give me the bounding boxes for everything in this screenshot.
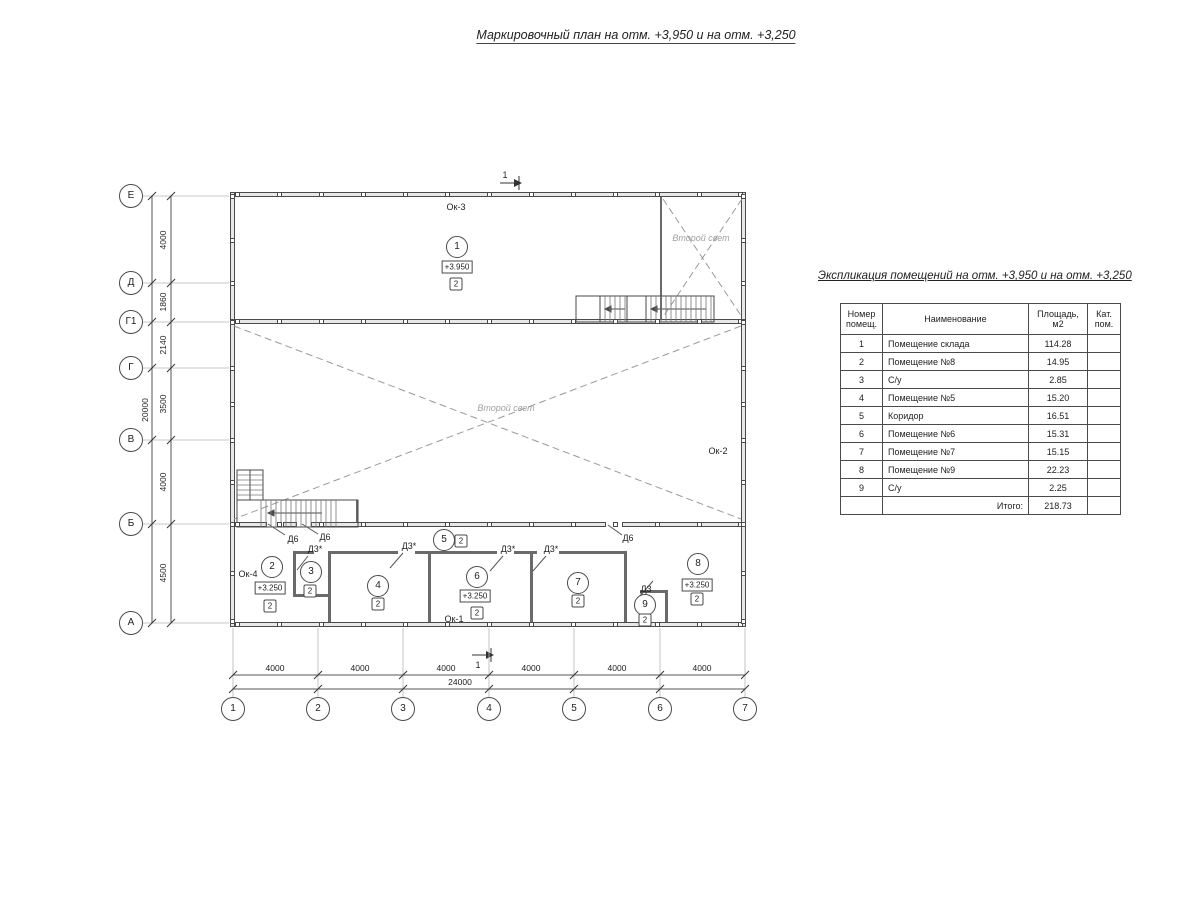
door-label: Д6 bbox=[319, 532, 330, 542]
dimension-value: 4000 bbox=[437, 663, 456, 673]
category-mark: 2 bbox=[691, 593, 704, 606]
dimension-value: 4000 bbox=[351, 663, 370, 673]
schedule-cell: Помещение склада bbox=[882, 335, 1028, 353]
column-marker bbox=[319, 522, 324, 527]
schedule-cell: 15.20 bbox=[1028, 389, 1087, 407]
schedule-cell: 2 bbox=[841, 353, 883, 371]
column-marker bbox=[655, 319, 660, 324]
drawing-sheet: Маркировочный план на отм. +3,950 и на о… bbox=[0, 0, 1200, 900]
schedule-cell: 3 bbox=[841, 371, 883, 389]
schedule-cell: 16.51 bbox=[1028, 407, 1087, 425]
schedule-title: Экспликация помещений на отм. +3,950 и н… bbox=[818, 270, 1132, 282]
column-marker bbox=[445, 622, 450, 627]
column-marker bbox=[613, 192, 618, 197]
column-marker bbox=[235, 192, 240, 197]
axis-bubble-Е: Е bbox=[119, 184, 143, 208]
column-marker bbox=[403, 622, 408, 627]
window-label: Ок-2 bbox=[709, 446, 728, 456]
schedule-cell: 14.95 bbox=[1028, 353, 1087, 371]
column-marker bbox=[741, 402, 746, 407]
column-marker bbox=[613, 522, 618, 527]
column-marker bbox=[361, 622, 366, 627]
category-mark: 2 bbox=[304, 585, 317, 598]
schedule-cell bbox=[1087, 353, 1120, 371]
room-number-2: 2 bbox=[261, 556, 283, 578]
dimension-value: 4000 bbox=[522, 663, 541, 673]
column-marker bbox=[230, 194, 235, 199]
dimension-value: 4000 bbox=[158, 473, 168, 492]
column-marker bbox=[487, 622, 492, 627]
category-mark: 2 bbox=[264, 600, 277, 613]
schedule-cell: 9 bbox=[841, 479, 883, 497]
column-marker bbox=[235, 522, 240, 527]
schedule-cell: С/у bbox=[882, 479, 1028, 497]
column-marker bbox=[230, 366, 235, 371]
column-marker bbox=[319, 192, 324, 197]
door-label: Д3* bbox=[308, 544, 323, 554]
column-marker bbox=[230, 238, 235, 243]
room-number-6: 6 bbox=[466, 566, 488, 588]
schedule-cell: 7 bbox=[841, 443, 883, 461]
dimension-value: 3500 bbox=[158, 395, 168, 414]
column-marker bbox=[741, 571, 746, 576]
schedule-row: 3С/у2.85 bbox=[841, 371, 1121, 389]
column-marker bbox=[319, 319, 324, 324]
dimension-value: 2140 bbox=[158, 336, 168, 355]
void-label: Второй свет bbox=[672, 233, 729, 243]
category-mark: 2 bbox=[639, 614, 652, 627]
door-label: Д6 bbox=[622, 533, 633, 543]
column-marker bbox=[697, 192, 702, 197]
schedule-cell bbox=[1087, 371, 1120, 389]
schedule-cell: С/у bbox=[882, 371, 1028, 389]
schedule-cell bbox=[1087, 479, 1120, 497]
schedule-cell bbox=[1087, 443, 1120, 461]
column-marker bbox=[230, 438, 235, 443]
axis-bubble-Б: Б bbox=[119, 512, 143, 536]
schedule-cell: 6 bbox=[841, 425, 883, 443]
column-marker bbox=[277, 319, 282, 324]
column-marker bbox=[277, 522, 282, 527]
room-number-1: 1 bbox=[446, 236, 468, 258]
column-marker bbox=[571, 319, 576, 324]
door-label: Д3* bbox=[501, 544, 516, 554]
axis-bubble-Г: Г bbox=[119, 356, 143, 380]
schedule-row: 7Помещение №715.15 bbox=[841, 443, 1121, 461]
window-label: Ок-3 bbox=[447, 202, 466, 212]
column-marker bbox=[655, 522, 660, 527]
elevation-mark: +3.250 bbox=[460, 590, 491, 603]
column-marker bbox=[361, 319, 366, 324]
schedule-cell: 5 bbox=[841, 407, 883, 425]
category-mark: 2 bbox=[471, 607, 484, 620]
schedule-cell bbox=[1087, 461, 1120, 479]
column-marker bbox=[230, 402, 235, 407]
schedule-cell: Помещение №8 bbox=[882, 353, 1028, 371]
room-schedule-table: Номер помещ.НаименованиеПлощадь, м2Кат. … bbox=[840, 303, 1121, 515]
column-marker bbox=[230, 571, 235, 576]
dimension-value: 4500 bbox=[158, 564, 168, 583]
schedule-row: 8Помещение №922.23 bbox=[841, 461, 1121, 479]
column-marker bbox=[445, 319, 450, 324]
axis-bubble-1: 1 bbox=[221, 697, 245, 721]
schedule-cell: Помещение №6 bbox=[882, 425, 1028, 443]
schedule-cell: 15.15 bbox=[1028, 443, 1087, 461]
column-marker bbox=[445, 522, 450, 527]
schedule-cell: Помещение №7 bbox=[882, 443, 1028, 461]
axis-bubble-В: В bbox=[119, 428, 143, 452]
dimension-value: 1860 bbox=[158, 293, 168, 312]
schedule-col-header: Наименование bbox=[882, 304, 1028, 335]
schedule-total-cell bbox=[841, 497, 883, 515]
door-label: Д3 bbox=[640, 584, 651, 594]
column-marker bbox=[697, 622, 702, 627]
schedule-cell: 4 bbox=[841, 389, 883, 407]
column-marker bbox=[529, 192, 534, 197]
schedule-col-header: Номер помещ. bbox=[841, 304, 883, 335]
schedule-cell: 8 bbox=[841, 461, 883, 479]
schedule-cell bbox=[1087, 425, 1120, 443]
dimension-value: 4000 bbox=[608, 663, 627, 673]
schedule-total-cell bbox=[1087, 497, 1120, 515]
stairs-top bbox=[576, 296, 714, 322]
column-marker bbox=[319, 622, 324, 627]
column-marker bbox=[697, 319, 702, 324]
schedule-total-row: Итого:218.73 bbox=[841, 497, 1121, 515]
void-cross-lines bbox=[234, 199, 742, 519]
category-mark: 2 bbox=[450, 278, 463, 291]
axis-bubble-7: 7 bbox=[733, 697, 757, 721]
schedule-cell: Помещение №5 bbox=[882, 389, 1028, 407]
schedule-cell: 2.25 bbox=[1028, 479, 1087, 497]
schedule-cell: 114.28 bbox=[1028, 335, 1087, 353]
schedule-cell: 15.31 bbox=[1028, 425, 1087, 443]
column-marker bbox=[403, 319, 408, 324]
column-marker bbox=[741, 281, 746, 286]
column-marker bbox=[403, 522, 408, 527]
schedule-cell: Коридор bbox=[882, 407, 1028, 425]
column-marker bbox=[487, 522, 492, 527]
section-mark-label: 1 bbox=[475, 660, 480, 670]
schedule-total-cell: Итого: bbox=[882, 497, 1028, 515]
column-marker bbox=[613, 319, 618, 324]
schedule-col-header: Кат. пом. bbox=[1087, 304, 1120, 335]
schedule-cell bbox=[1087, 407, 1120, 425]
dimension-value: 4000 bbox=[693, 663, 712, 673]
column-marker bbox=[529, 319, 534, 324]
dimension-value: 4000 bbox=[158, 231, 168, 250]
axis-bubble-2: 2 bbox=[306, 697, 330, 721]
schedule-row: 1Помещение склада114.28 bbox=[841, 335, 1121, 353]
column-marker bbox=[529, 522, 534, 527]
column-marker bbox=[230, 320, 235, 325]
axis-bubble-А: А bbox=[119, 611, 143, 635]
column-marker bbox=[235, 319, 240, 324]
axis-bubble-4: 4 bbox=[477, 697, 501, 721]
schedule-col-header: Площадь, м2 bbox=[1028, 304, 1087, 335]
column-marker bbox=[403, 192, 408, 197]
schedule-cell: Помещение №9 bbox=[882, 461, 1028, 479]
column-marker bbox=[571, 522, 576, 527]
section-mark-label: 1 bbox=[502, 170, 507, 180]
schedule-total-cell: 218.73 bbox=[1028, 497, 1087, 515]
door-label: Д6 bbox=[287, 534, 298, 544]
axis-bubble-3: 3 bbox=[391, 697, 415, 721]
column-marker bbox=[277, 192, 282, 197]
column-marker bbox=[487, 192, 492, 197]
dimension-total: 24000 bbox=[448, 677, 472, 687]
column-marker bbox=[741, 480, 746, 485]
column-marker bbox=[741, 438, 746, 443]
column-marker bbox=[571, 622, 576, 627]
schedule-row: 4Помещение №515.20 bbox=[841, 389, 1121, 407]
schedule-cell: 1 bbox=[841, 335, 883, 353]
column-marker bbox=[741, 194, 746, 199]
column-marker bbox=[487, 319, 492, 324]
schedule-header: Номер помещ.НаименованиеПлощадь, м2Кат. … bbox=[841, 304, 1121, 335]
schedule-row: 2Помещение №814.95 bbox=[841, 353, 1121, 371]
elevation-mark: +3.250 bbox=[682, 579, 713, 592]
room-number-7: 7 bbox=[567, 572, 589, 594]
column-marker bbox=[361, 192, 366, 197]
page-title: Маркировочный план на отм. +3,950 и на о… bbox=[476, 28, 795, 44]
column-marker bbox=[697, 522, 702, 527]
room-number-5: 5 bbox=[433, 529, 455, 551]
column-marker bbox=[529, 622, 534, 627]
room-number-3: 3 bbox=[300, 561, 322, 583]
column-marker bbox=[230, 480, 235, 485]
schedule-row: 9С/у2.25 bbox=[841, 479, 1121, 497]
void-label: Второй свет bbox=[477, 403, 534, 413]
column-marker bbox=[277, 622, 282, 627]
column-marker bbox=[655, 192, 660, 197]
room-number-4: 4 bbox=[367, 575, 389, 597]
schedule-cell: 22.23 bbox=[1028, 461, 1087, 479]
axis-bubble-Д: Д bbox=[119, 271, 143, 295]
schedule-row: 5Коридор16.51 bbox=[841, 407, 1121, 425]
column-marker bbox=[741, 238, 746, 243]
schedule-cell: 2.85 bbox=[1028, 371, 1087, 389]
column-marker bbox=[741, 366, 746, 371]
room-number-8: 8 bbox=[687, 553, 709, 575]
column-marker bbox=[571, 192, 576, 197]
column-marker bbox=[741, 320, 746, 325]
elevation-mark: +3.950 bbox=[442, 261, 473, 274]
axis-bubble-5: 5 bbox=[562, 697, 586, 721]
door-label: Д3* bbox=[402, 541, 417, 551]
axis-bubble-6: 6 bbox=[648, 697, 672, 721]
schedule-body: 1Помещение склада114.282Помещение №814.9… bbox=[841, 335, 1121, 515]
dimension-total: 20000 bbox=[140, 398, 150, 422]
column-marker bbox=[445, 192, 450, 197]
door-label: Д3* bbox=[544, 544, 559, 554]
elevation-mark: +3.250 bbox=[255, 582, 286, 595]
axis-bubble-Г1: Г1 bbox=[119, 310, 143, 334]
column-marker bbox=[230, 281, 235, 286]
column-marker bbox=[230, 619, 235, 624]
schedule-cell bbox=[1087, 335, 1120, 353]
column-marker bbox=[741, 522, 746, 527]
column-marker bbox=[741, 619, 746, 624]
schedule-cell bbox=[1087, 389, 1120, 407]
column-marker bbox=[230, 522, 235, 527]
column-marker bbox=[235, 622, 240, 627]
schedule-row: 6Помещение №615.31 bbox=[841, 425, 1121, 443]
window-label: Ок-4 bbox=[239, 569, 258, 579]
category-mark: 2 bbox=[372, 598, 385, 611]
dimension-value: 4000 bbox=[266, 663, 285, 673]
category-mark: 2 bbox=[572, 595, 585, 608]
column-marker bbox=[361, 522, 366, 527]
category-mark: 2 bbox=[455, 535, 468, 548]
column-marker bbox=[655, 622, 660, 627]
column-marker bbox=[613, 622, 618, 627]
